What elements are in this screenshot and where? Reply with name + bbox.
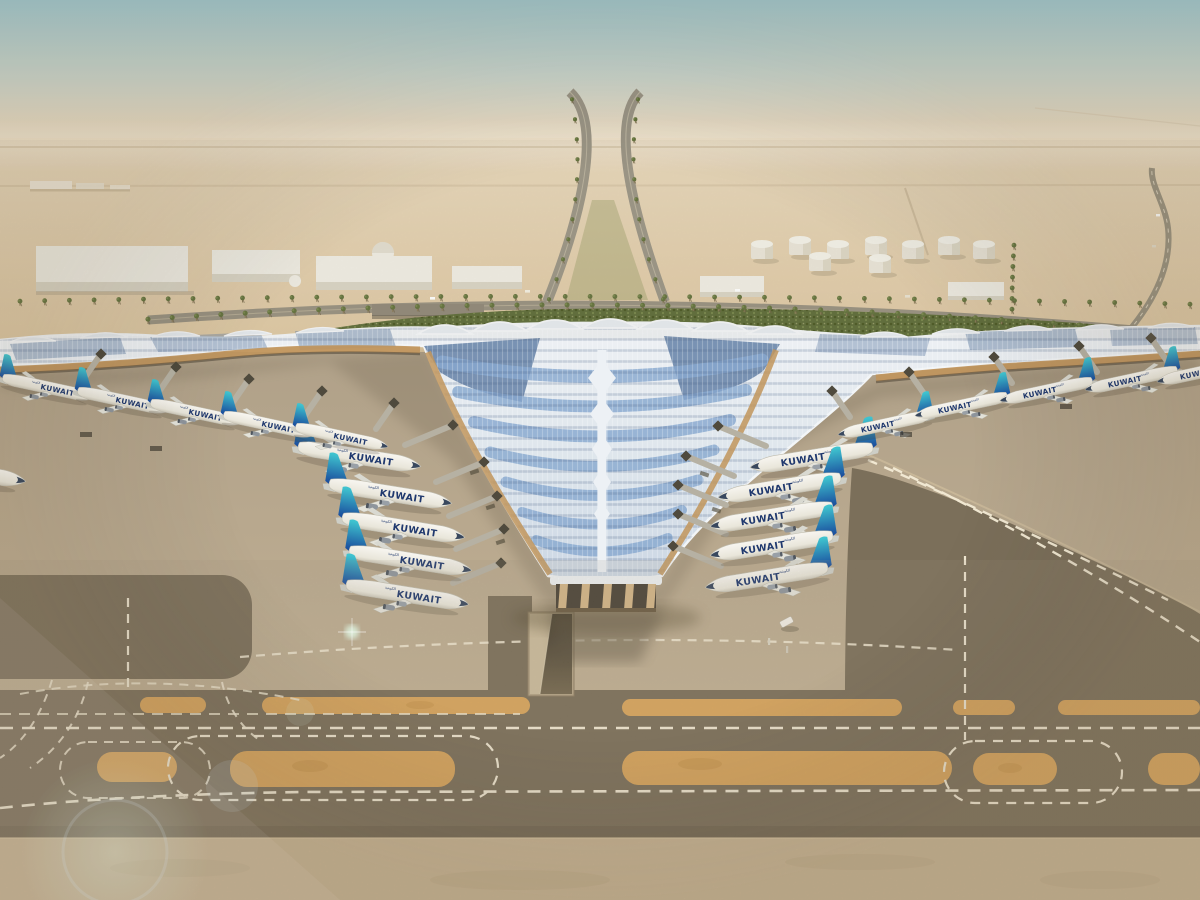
scene-canvas: KUWAIT الكويتية KUWAIT الكويتية [0, 0, 1200, 900]
vignette [0, 0, 1200, 900]
airport-aerial-rendering: KUWAIT الكويتية KUWAIT الكويتية [0, 0, 1200, 900]
